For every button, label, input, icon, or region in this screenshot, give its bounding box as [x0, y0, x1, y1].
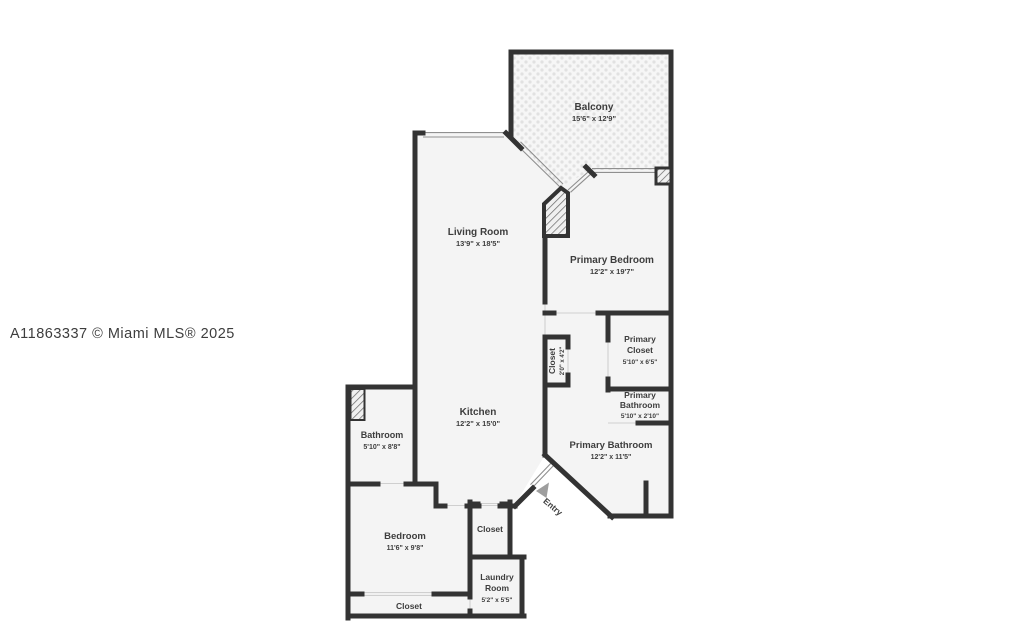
bedroom-closet-label: Closet: [396, 601, 422, 611]
watermark: A11863337 © Miami MLS® 2025: [10, 326, 235, 342]
hall-closet-dims: 2'0" x 4'2": [560, 347, 566, 376]
primary-bedroom-label: Primary Bedroom: [570, 255, 654, 266]
kitchen-label: Kitchen: [460, 407, 497, 418]
balcony-label: Balcony: [575, 102, 614, 113]
floorplan-page: Balcony 15'6" x 12'9" Living Room 13'9" …: [0, 0, 1024, 640]
primary-closet-dims: 5'10" x 6'5": [623, 359, 658, 366]
kitchen-dims: 12'2" x 15'0": [456, 419, 500, 428]
primary-bedroom-dims: 12'2" x 19'7": [590, 267, 634, 276]
middle-closet-label: Closet: [477, 524, 503, 534]
primary-bathroom-dims: 12'2" x 11'5": [591, 454, 632, 461]
primary-bathroom-small-label-1: Primary: [624, 390, 656, 400]
primary-bathroom-small-label-2: Bathroom: [620, 400, 661, 410]
primary-closet-label-2: Closet: [627, 345, 653, 355]
primary-closet-label-1: Primary: [624, 334, 656, 344]
laundry-dims: 5'2" x 5'5": [482, 597, 513, 604]
bathroom-label: Bathroom: [361, 430, 404, 440]
corner-column-hatched: [656, 168, 671, 184]
shower-hatched: [351, 389, 365, 420]
living-room-label: Living Room: [448, 227, 509, 238]
laundry-label-1: Laundry: [480, 572, 514, 582]
bathroom-dims: 5'10" x 8'8": [363, 444, 400, 451]
bedroom-label: Bedroom: [384, 531, 426, 542]
primary-bathroom-label: Primary Bathroom: [570, 440, 653, 451]
bedroom-dims: 11'6" x 9'8": [387, 545, 424, 552]
primary-bathroom-small-dims: 5'10" x 2'10": [621, 413, 659, 420]
living-room-dims: 13'9" x 18'5": [456, 239, 500, 248]
floor-plan: Balcony 15'6" x 12'9" Living Room 13'9" …: [0, 0, 1024, 640]
laundry-label-2: Room: [485, 583, 510, 593]
balcony-dims: 15'6" x 12'9": [572, 114, 616, 123]
living-kitchen-floor: [415, 133, 560, 506]
hall-closet-label: Closet: [547, 348, 557, 374]
